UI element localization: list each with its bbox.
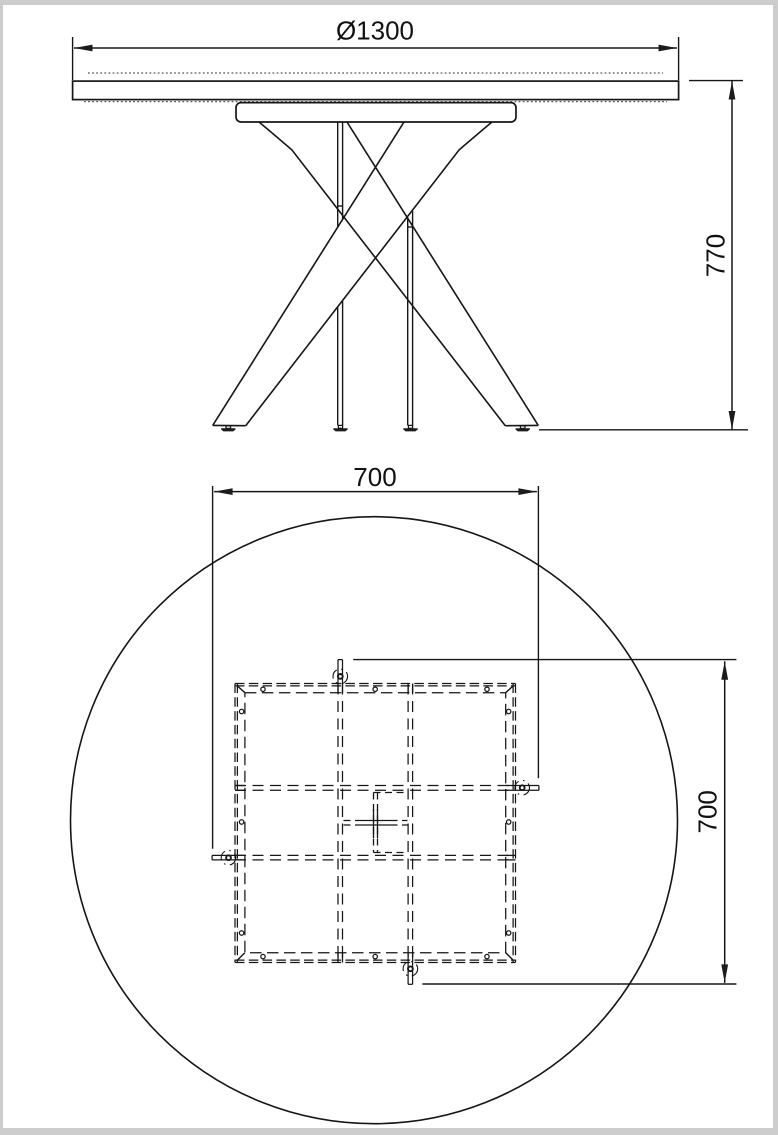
svg-text:Ø1300: Ø1300 (336, 16, 414, 46)
svg-text:700: 700 (353, 462, 396, 492)
svg-text:770: 770 (701, 234, 731, 277)
svg-text:700: 700 (692, 790, 722, 833)
